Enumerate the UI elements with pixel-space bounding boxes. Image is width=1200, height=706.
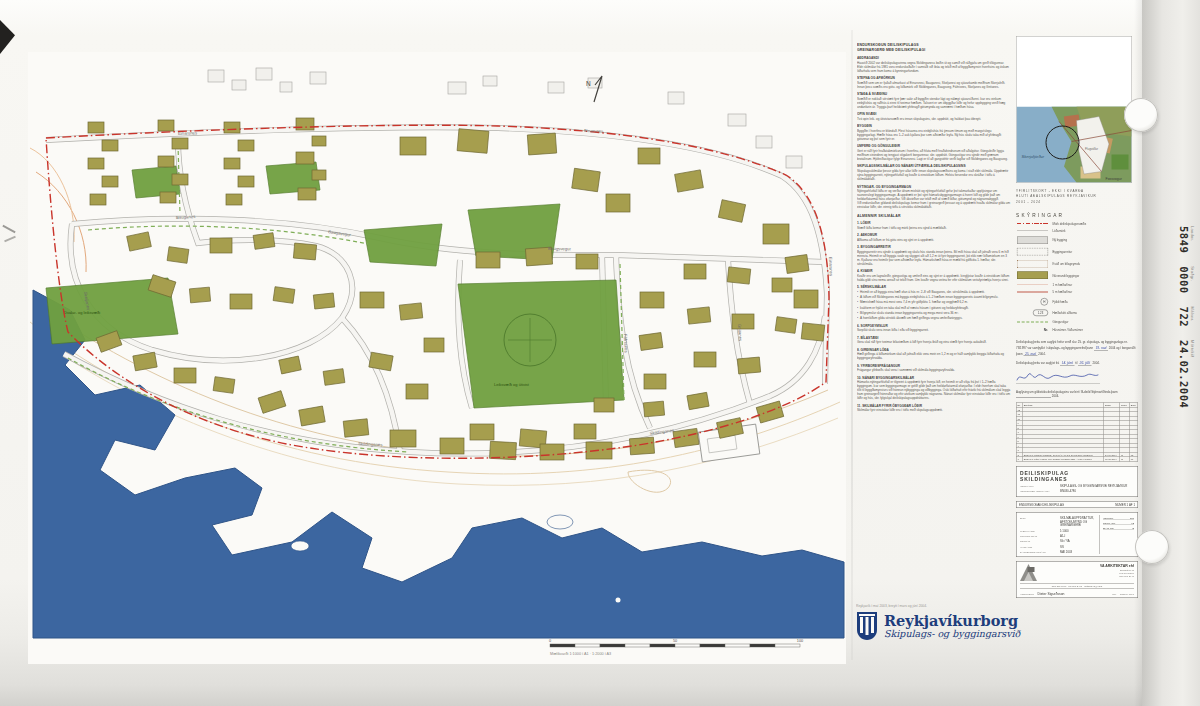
island [291,541,309,551]
context-building [483,76,497,86]
building-footprint [457,129,489,154]
legend-label: Byggingarreitur [1053,250,1073,253]
building-footprint [102,176,118,187]
blank-line [1016,394,1051,398]
firm-contact: sími 561 2440 · fax 561 2441 · netfang v… [1020,583,1134,589]
building-footprint [424,338,444,352]
island [616,598,621,603]
titleblock-row-value: SKIPULAGS- OG BYGGINGARSVIÐ REYKJAVÍKUR [1060,484,1134,488]
building-footprint [296,118,314,130]
bullet-text: Bílgeymslur skulu standa innan byggingar… [860,311,959,315]
approval-text: Auglýsing um gildistöku deiliskipulagsin… [1016,390,1118,393]
section-paragraph: Nýtingarhlutfall lóða er og verður áfram… [857,189,1011,209]
street-label: Einarsnes [584,128,603,134]
legend-symbol [1016,248,1048,256]
info-row-label: YFIRFARIÐ [1020,545,1060,548]
legend-symbol: 1.23 [1016,310,1048,317]
context-building [548,82,564,93]
section-bullet: •Heimilt er að byggja eina hæð ofan á hú… [857,290,1011,294]
section-paragraph: Skipulagsskilmálar þessir gilda fyrir al… [857,169,1011,181]
scale-segment [600,644,625,647]
stamp-field-value: 24.02.2004 [1178,340,1190,408]
punch-hole [1135,530,1169,564]
legend: Mörk deiliskipulagssvæðisLóðamörkNý bygg… [1016,222,1138,331]
inset-sea-label: Skerjafjörður [1022,154,1045,159]
building-footprint [238,140,254,151]
building-footprint [88,122,104,133]
legend-row: Ný bygging [1016,236,1138,244]
building-footprint [390,430,416,447]
circle-h-symbol: H [1041,298,1049,306]
building-footprint [574,424,596,439]
section-bullet: •Þakform er frjálst en taka skal mið af … [857,305,1011,309]
bullet-dot: • [857,305,858,309]
building-footprint [794,290,818,308]
street-label: Baugsvegur [548,246,572,251]
site-plan-map: Leiksvæði og útivistDvalar- og leiksvæði… [28,52,846,664]
scale-segment [725,644,750,647]
section-heading: NÝTINGAR- OG BYGGINGARMAGN [857,184,1011,188]
titleblock-row-label: VERKNÚMER VERKKAUPA [1020,490,1060,493]
dashdot-red-symbol [1017,223,1048,224]
signature-handwriting [1016,370,1138,387]
section-heading: BYGGÐIN [857,124,1011,128]
building-footprint [158,120,174,131]
plan-status-band: ENDURSKOÐAÐ DEILISKIPULAG NÚMER 1 AF 1 [1016,501,1138,508]
city-logo-block: Reykjavík í maí 2003, breytt í mars og j… [856,604,1056,641]
scale-segment [750,644,775,647]
inset-caption-line3: 2001 - 2024 [1016,199,1138,204]
section-heading: 9. YFIRBORÐSFRÁGANGUR [857,363,1011,367]
inset-bay-label: Fossvogur [1106,177,1123,181]
context-building [448,82,466,94]
drawing-number-label: BLAÐ NR. [1103,527,1114,530]
text-nr-symbol: Nr. [1044,328,1048,332]
registry-stamp-values: Landnr.5849Staðgr.0000Málsnr.722Móttekið… [1178,226,1195,436]
drawing-info-block: EFNISKILMÁLAUPPDRÁTTUR, AFSTÖÐUMYND OG G… [1016,512,1138,557]
building-footprint [763,224,789,244]
context-building [208,70,224,82]
section-heading: 5. SÉRSKILMÁLAR [857,285,1011,289]
building-footprint [224,122,240,133]
credit-label: HÖNNUÐUR [1020,592,1034,595]
stamp-field-value: 5849 [1178,226,1190,253]
building-footprint [102,140,118,151]
report-sections: AÐDRAGANDIHaustið 2002 var deiliskipulag… [857,56,1011,412]
legend-row: Nr.Húsnúmer / lóðarnúmer [1016,328,1138,332]
site-plan-svg: Leiksvæði og útivistDvalar- og leiksvæði… [28,52,846,664]
stamp-field: Móttekið24.02.2004 [1178,340,1195,408]
bullet-text: Þakform er frjálst en taka skal mið af n… [860,305,969,309]
building-footprint [694,352,716,367]
firm-address-line: sími 561 2440 [1100,575,1134,578]
building-footprint [406,384,428,399]
building-footprint [323,369,345,386]
building-footprint [737,357,760,374]
section-paragraph: Stærð lóða kemur fram í töflu og mörk þe… [857,225,1011,229]
va-arkitektar-logo-icon [1020,564,1038,581]
reykjavik-shield-icon [856,611,878,641]
info-row: FRUMRIT BLAÐA1-Í [1020,534,1097,538]
section-paragraph: Skilmálar fyrir einstakar lóðir eru í tö… [857,408,1011,412]
building-footprint [629,437,654,455]
drawing-number-label: VERKNR. [1103,517,1114,520]
legend-label: Hæðarkóti aðkomu [1053,311,1077,314]
bullet-dot: • [857,300,858,304]
bullet-text: Mænishæð húsa má mest vera 7,4 m yfir gó… [860,300,968,304]
date-note: Reykjavík í maí 2003, breytt í mars og j… [856,604,1056,608]
stamp-field-label: Móttekið [1190,340,1195,408]
island [547,515,573,529]
legend-row: Mörk deiliskipulagssvæðis [1016,222,1138,225]
info-row-label: FRUMRIT BLAÐ [1020,535,1060,538]
building-footprint [576,254,598,269]
building-footprint [643,401,664,417]
info-row: TEIKNAÐSÞ / VA [1020,540,1097,544]
section-heading: AÐDRAGANDI [857,56,1011,60]
building-footprint [687,392,709,409]
building-footprint [687,307,710,324]
drawing-number-value: 02 [1131,522,1134,525]
legend-label: 5 m hæðarlínur [1053,291,1073,294]
legend-symbol: H [1016,298,1048,306]
scale-segment [650,644,675,647]
titleblock-row: VERKKAUPISKIPULAGS- OG BYGGINGARSVIÐ REY… [1020,484,1134,488]
revision-table: Nr.BreytingDags.Teikn.Blað12111098765432… [1016,403,1138,462]
legend-symbol [1016,260,1048,268]
park-circle [504,314,556,366]
handwritten-date: 14. júní [1060,361,1074,366]
building-footprint [189,287,210,303]
building-footprint [253,233,275,250]
stamp-field: Málsnr.722 [1178,307,1195,327]
line-red-symbol [1017,292,1048,293]
status-label: ENDURSKOÐAÐ DEILISKIPULAG [1019,503,1064,506]
section-paragraph: Kvaðir eru um lagnaleiðir, göngustíga og… [857,273,1011,281]
section-heading: 7. BÍLASTÆÐI [857,335,1011,339]
scale-segment [625,644,650,647]
handwritten-date: 26. júlí [1078,361,1091,366]
legend-symbol [1016,272,1048,280]
building-footprint [238,176,254,187]
green-area-label: Leiksvæði og útivist [494,382,530,387]
overview-map: Skerjafjörður Flugvöllur Fossvogur [1017,107,1132,183]
approval-text: 2004. [1051,395,1059,398]
building-footprint [606,194,630,212]
report-title-line2: GREINARGERÐ MEÐ DEILISKIPULAGI [857,47,1011,52]
scale-caption: Mælikvarði 1:1000 í A1 · 1:2000 í A3 [550,651,611,656]
section-paragraph: Tvö opin leik- og útivistarsvæði eru inn… [857,117,1011,121]
legend-row: 1.23Hæðarkóti aðkomu [1016,310,1138,317]
building-footprint [160,192,176,203]
building-footprint [213,377,235,394]
section-paragraph: Svæðið er nokkuð sérstætt fyrir þær saki… [857,97,1011,109]
drawing-number-value: B [1132,527,1134,530]
building-footprint [273,287,295,304]
info-row-value: SKILMÁLAUPPDRÁTTUR, AFSTÖÐUMYND OG GREIN… [1060,517,1097,528]
drawing-number-label: TEIKN. NR. [1103,522,1116,525]
section-bullet: •Mænishæð húsa má mest vera 7,4 m yfir g… [857,300,1011,304]
section-heading: 8. GIRÐINGAR LÓÐA [857,347,1011,351]
building-footprint [527,133,556,155]
legend-label: Núverandi byggingar [1053,274,1080,277]
credit-nr: 123606-0890 [1120,592,1134,595]
building-footprint [174,368,196,383]
stamp-field-label: Landnr. [1190,226,1195,253]
titleblock-row: VERKNÚMER VERKKAUPABN030-4780 [1020,490,1134,494]
legend-symbol [1016,285,1048,286]
building-footprint [400,137,426,155]
building-footprint [727,267,750,284]
context-building [310,72,326,84]
sheet-count: NÚMER 1 AF 1 [1115,503,1135,506]
section-heading: ALMENNIR SKILMÁLAR [857,214,1011,218]
city-name: Reykjavíkurborg [884,613,1020,628]
section-heading: UMFERÐ OG GÖNGULEIÐIR [857,144,1011,148]
revision-text: BREYTT: LÓÐAMÖRK OG GREINARGERÐ SBR. AUG… [1022,457,1103,462]
building-footprint [293,243,316,260]
paper-fold-line [851,30,853,660]
stamp-field-label: Staðgr. [1190,266,1195,293]
building-footprint [785,255,809,274]
oval-k-symbol: 1.23 [1033,310,1048,317]
revision-date: 07.05.2004 [1104,457,1120,462]
section-heading: OPIN SVÆÐI [857,112,1011,116]
green-area [364,224,442,266]
overview-map-box: Skerjafjörður Flugvöllur Fossvogur [1016,36,1132,183]
architect-firm-block: VA ARKITEKTAR ehf Borgartúni 17105 Reykj… [1016,561,1138,598]
building-footprint [772,278,792,292]
building-footprint [476,252,500,268]
context-building [786,156,802,168]
rect-dot-symbol [1017,260,1048,268]
firm-address: Borgartúni 17105 Reykjavíksími 561 2440 [1100,568,1134,578]
approval-block: Deiliskipulag þetta sem auglýst hefur ve… [1016,340,1138,398]
section-heading: 2. AÐKOMUR [857,233,1011,237]
section-bullet: •Á hornlóðum gilda sérstök ákvæði um hæð… [857,316,1011,320]
bullet-dot: • [857,316,858,320]
stamp-field-value: 722 [1178,307,1190,327]
street-label: Fáfnisnes [623,334,629,353]
section-bullet: •Á lóðum við Skildinganes má byggja einb… [857,295,1011,299]
scale-segment [575,644,600,647]
legend-label: 1 m hæðarlínur [1053,283,1073,286]
building-footprint [470,424,494,440]
stamp-field: Staðgr.0000 [1178,266,1195,293]
legend-symbol [1016,230,1048,231]
building-footprint [90,194,106,205]
section-heading: 4. KVAÐIR [857,269,1011,273]
building-footprint [572,168,601,191]
stamp-field: Landnr.5849 [1178,226,1195,253]
legend-row: Byggingarreitur [1016,248,1138,256]
scale-segment [550,644,575,647]
legend-title: SKÝRINGAR [1016,212,1138,218]
section-heading: STAÐA Á SVÆÐINU [857,92,1011,96]
street-label: Gnitanes [737,324,743,341]
section-paragraph: Byggðin í hverfinu er blönduð. Flest hús… [857,129,1011,141]
credit-nr-label: NR. [1112,592,1116,595]
building-footprint [440,438,464,454]
section-paragraph: Aðkoma að lóðum er frá götu eins og sýnt… [857,237,1011,241]
building-footprint [167,247,189,264]
inset-airport-label: Flugvöllur [1085,147,1098,151]
green-area [458,280,624,408]
scale-segment [700,644,725,647]
title-block-rows: VERKKAUPISKIPULAGS- OG BYGGINGARSVIÐ REY… [1020,484,1134,493]
bullet-text: Heimilt er að byggja eina hæð ofan á hús… [860,290,985,294]
info-row-label: DAGSETNING ÚTGÁFU [1020,551,1060,554]
building-footprint [172,138,188,149]
legend-row: Kvöð um bílageymslu [1016,260,1138,268]
street-label: Einarsnes [178,130,197,136]
legend-symbol [1016,223,1048,224]
section-paragraph: Byggingarreitir eru sýndir á uppdrætti o… [857,249,1011,265]
city-department: Skipulags- og byggingarsvið [884,628,1020,639]
handwritten-date: 25. maí [1023,351,1037,356]
building-footprint [88,158,104,169]
building-footprint [775,317,797,334]
drawing-number-row: TEIKN. NR.02 [1103,522,1134,525]
section-heading: 10. NÁNARI BYGGINGARSKILMÁLAR [857,375,1011,379]
section-paragraph: Svæðið sem um er fjallað afmarkast af Ei… [857,81,1011,89]
info-row: YFIRFARIÐSS [1020,545,1097,549]
bullet-dot: • [857,295,858,299]
credit-name: Dieter Sigurðsson [1037,591,1108,595]
section-paragraph: Hæð girðinga á lóðamörkum skal að jafnað… [857,352,1011,360]
drawing-number-value: 380 [1130,517,1134,520]
punch-hole [1124,98,1158,132]
section-paragraph: Gera skal ráð fyrir tveimur bílastæðum á… [857,340,1011,344]
bullet-dot: • [857,311,858,315]
building-footprint [230,294,252,309]
building-footprint [296,152,314,164]
context-building [668,92,684,104]
info-row-label: EFNI [1020,517,1060,520]
legend-row: HFjöldi hæða [1016,298,1138,306]
scale-tick-label: 100 [797,639,803,643]
building-footprint [399,303,422,320]
info-row-value: SS [1060,545,1097,549]
scale-segment [775,644,800,647]
building-footprint [210,238,232,253]
rect-dash-symbol [1017,248,1048,256]
approval-paragraph: Auglýsing um gildistöku deiliskipulagsin… [1016,390,1138,399]
titleblock-row-label: VERKKAUPI [1020,485,1060,488]
building-footprint [298,188,316,200]
north-letter: N [586,80,591,87]
building-footprint [343,419,369,437]
building-footprint [684,264,706,279]
drawing-numbers: VERKNR.380TEIKN. NR.02BLAÐ NR.B [1100,515,1135,554]
section-paragraph: Frágangur yfirborðs skal vera í samræmi … [857,368,1011,372]
section-heading: 1. LÓÐIR [857,221,1011,225]
legend-label: Kvöð um bílageymslu [1053,262,1081,265]
building-footprint [224,158,240,169]
legend-label: Lóðamörk [1053,229,1066,232]
handwritten-date: 19. maí [1094,345,1108,350]
section-heading: 6. SORPGEYMSLUR [857,323,1011,327]
right-column: Skerjafjörður Flugvöllur Fossvogur YFIRL… [1016,36,1138,666]
legend-symbol [1016,236,1048,244]
building-footprint [594,398,614,412]
building-footprint [312,136,326,146]
scanned-plan-sheet: Leiksvæði og útivistDvalar- og leiksvæði… [0,0,1200,706]
section-paragraph: Haustið 2002 var deiliskipulagsvinna veg… [857,61,1011,73]
inset-caption: YFIRLITSKORT - EKKI Í KVARÐA HLUTI AÐALS… [1016,188,1138,204]
context-building [256,68,272,80]
building-footprint [312,170,326,180]
section-bullet: •Bílgeymslur skulu standa innan bygginga… [857,311,1011,315]
revision-nr: 01 [1130,457,1138,462]
context-building [232,80,246,90]
section-paragraph: Sorpílát skulu vera innan lóða í eða við… [857,328,1011,332]
building-footprint [639,333,663,351]
approval-text: 2004. [1092,362,1100,365]
building-footprint [540,444,564,460]
firm-name: VA ARKITEKTAR ehf [1100,564,1134,568]
legend-label: Húsnúmer / lóðarnúmer [1053,328,1083,331]
info-row: DAGSETNING ÚTGÁFUMAÍ 2003 [1020,550,1097,554]
drawing-number-row: BLAÐ NR.B [1103,527,1134,530]
dash-green-symbol [1017,321,1048,322]
bullet-dot: • [857,290,858,294]
revision-init: SÞ [1120,457,1130,462]
bullet-text: Á lóðum við Skildinganes má byggja einbý… [860,295,998,299]
street-label: Bauganes [176,214,196,220]
legend-symbol: Nr. [1016,328,1048,332]
section-heading: STEFNA OG AFMÖRKUN [857,76,1011,80]
stamp-field-label: Málsnr. [1190,307,1195,327]
building-footprint [640,292,664,308]
building-footprint [644,374,666,389]
legend-symbol [1016,321,1048,322]
section-heading: SKIPULAGSSKILMÁLAR OG NÁNARI ÚTFÆRSLA DE… [857,164,1011,168]
legend-row: 5 m hæðarlínur [1016,291,1138,294]
section-heading: 3. BYGGINGARREITIR [857,245,1011,249]
legend-label: Fjöldi hæða [1053,300,1068,303]
approval-text: 2004. [1037,352,1045,355]
building-footprint [360,292,384,308]
building-footprint [801,323,825,341]
context-building [280,82,292,92]
legend-label: Mörk deiliskipulagssvæðis [1053,222,1087,225]
info-row: MÆLIKVARÐI1:1000 [1020,529,1097,533]
section-heading: 11. SKILMÁLAR FYRIR ÓBYGGÐAR LÓÐIR [857,403,1011,407]
report-column: ENDURSKOÐUN DEILISKIPULAGS GREINARGERÐ M… [857,42,1011,610]
legend-row: Núverandi byggingar [1016,272,1138,280]
registry-stamp: Landnr.5849Staðgr.0000Málsnr.722Móttekið… [1161,226,1197,436]
context-building [728,114,746,126]
legend-label: Göngustígur [1053,320,1069,323]
info-row-value: MAÍ 2003 [1060,550,1097,554]
context-building [756,136,772,148]
scale-tick-label: 50 [673,639,677,643]
approval-paragraph: Deiliskipulag þetta sem auglýst hefur ve… [1016,340,1138,356]
approval-paragraph: Deiliskipulag þetta var auglýst frá 14. … [1016,360,1138,366]
street-label: Einarsnes [828,257,834,276]
stamp-field-value: 0000 [1178,266,1190,293]
section-paragraph: Gert er ráð fyrir hraðatakmörkunum í hve… [857,149,1011,161]
info-row: EFNISKILMÁLAUPPDRÁTTUR, AFSTÖÐUMYND OG G… [1020,517,1097,528]
line-thinred-symbol [1017,285,1048,286]
legend-row: Lóðamörk [1016,229,1138,232]
legend-row: 1 m hæðarlínur [1016,283,1138,286]
title-block: DEILISKIPULAG SKILDINGANES VERKKAUPISKIP… [1016,466,1138,497]
info-row-value: A1-Í [1060,534,1097,538]
titleblock-row-value: BN030-4780 [1060,490,1134,494]
legend-label: Ný bygging [1053,239,1068,242]
